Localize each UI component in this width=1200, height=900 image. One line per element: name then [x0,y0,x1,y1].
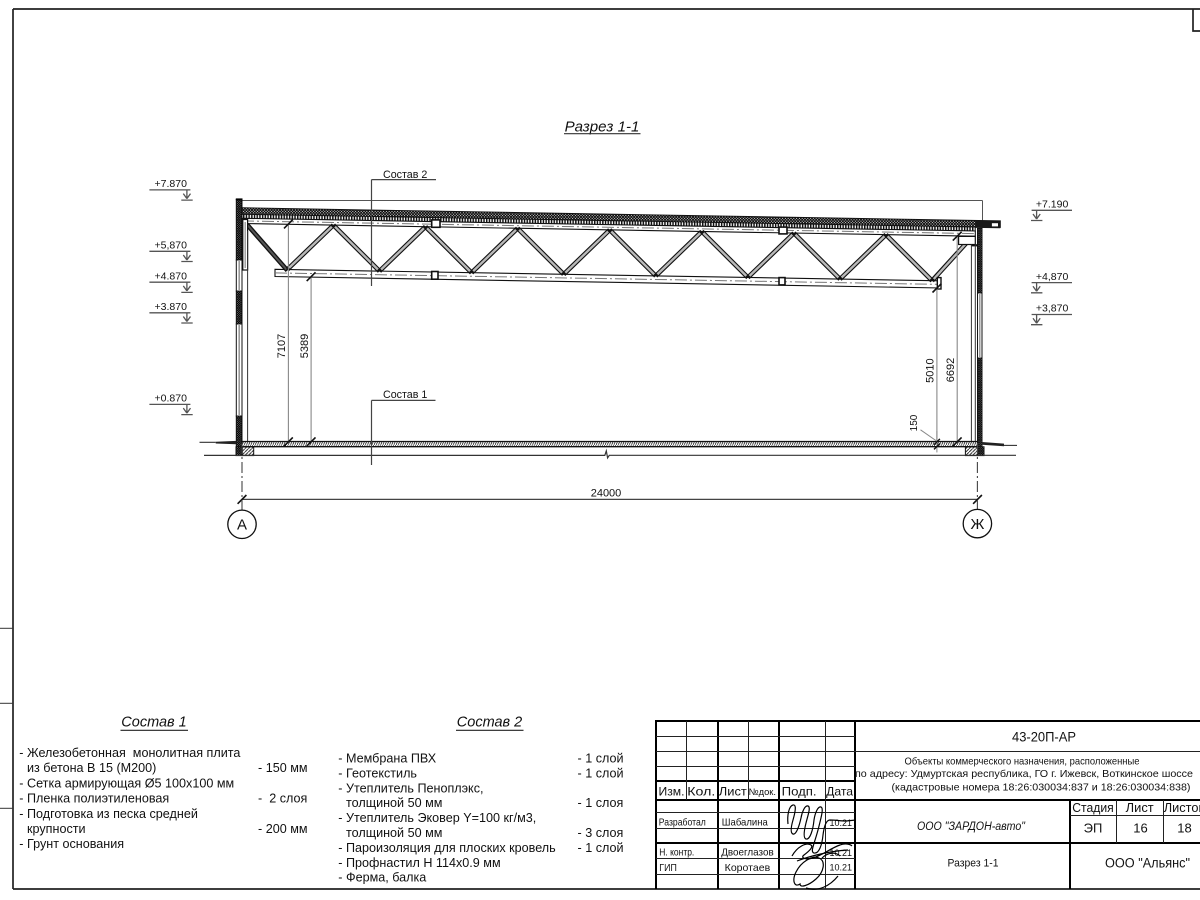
svg-text:10.21: 10.21 [830,862,853,873]
svg-text:Разрез 1-1: Разрез 1-1 [948,858,999,870]
svg-text:150: 150 [909,414,920,431]
svg-text:Н. контр.: Н. контр. [659,848,694,859]
svg-text:- Геотекстиль: - Геотекстиль [338,766,417,780]
svg-text:18: 18 [1177,821,1191,836]
svg-text:10.21: 10.21 [830,818,853,829]
svg-text:Состав 2: Состав 2 [457,715,522,731]
svg-text:+3.870: +3.870 [155,301,188,313]
svg-text:+7.870: +7.870 [155,178,188,190]
svg-text:ООО "Альянс": ООО "Альянс" [1105,856,1190,871]
svg-text:24000: 24000 [591,487,622,499]
svg-text:Разрез 1-1: Разрез 1-1 [565,118,640,135]
svg-text:- Подготовка из песка средней: - Подготовка из песка средней [19,807,198,821]
svg-text:Изм.: Изм. [659,785,685,799]
svg-text:Объекты коммерческого назначен: Объекты коммерческого назначения, распол… [905,756,1140,768]
svg-text:из бетона В 15 (М200): из бетона В 15 (М200) [27,761,156,775]
svg-text:- Железобетонная монолитная п: - Железобетонная монолитная плита [19,746,240,760]
svg-text:толщиной 50 мм: толщиной 50 мм [346,826,442,840]
svg-text:- Профнастил Н 114х0.9 мм: - Профнастил Н 114х0.9 мм [338,856,500,870]
svg-text:- 200 мм: - 200 мм [258,822,308,836]
svg-text:Лист: Лист [1126,801,1154,815]
svg-text:+4,870: +4,870 [1036,271,1069,283]
svg-text:- 1 слоя: - 1 слоя [578,796,624,810]
svg-text:ГИП: ГИП [659,863,677,874]
svg-text:16: 16 [1133,821,1147,836]
svg-text:Листов: Листов [1164,801,1200,815]
svg-text:Коротаев: Коротаев [725,862,771,874]
svg-text:- Утеплитель Эковер Y=100 кг/м: - Утеплитель Эковер Y=100 кг/м3, [338,811,536,825]
svg-text:Стадия: Стадия [1072,801,1114,815]
svg-text:- 150 мм: - 150 мм [258,761,308,775]
svg-text:по адресу: Удмуртская республи: по адресу: Удмуртская республика, ГО г. … [855,768,1193,780]
svg-text:+0.870: +0.870 [155,393,188,405]
svg-text:- 1 слой: - 1 слой [578,766,624,780]
svg-text:Кол.: Кол. [687,785,715,799]
svg-text:Подп.: Подп. [782,785,817,799]
svg-text:+3,870: +3,870 [1036,303,1069,315]
svg-text:- Утеплитель Пеноплэкс,: - Утеплитель Пеноплэкс, [338,781,483,795]
svg-text:Состав 1: Состав 1 [383,389,427,401]
svg-text:- 1 слой: - 1 слой [578,752,624,766]
svg-text:Двоеглазов: Двоеглазов [721,847,774,859]
svg-text:- Мембрана ПВХ: - Мембрана ПВХ [338,752,436,766]
svg-text:+7.190: +7.190 [1036,199,1069,211]
svg-text:Ж: Ж [970,516,984,533]
svg-text:- 2 слоя: - 2 слоя [258,792,307,806]
svg-text:Дата: Дата [826,785,853,799]
svg-text:- Грунт основания: - Грунт основания [19,837,124,851]
svg-text:№док.: №док. [749,787,776,798]
svg-text:43-20П-АР: 43-20П-АР [1012,730,1076,745]
svg-text:- Ферма, балка: - Ферма, балка [338,871,426,885]
svg-text:+4.870: +4.870 [155,270,188,282]
svg-text:Разработал: Разработал [659,816,706,828]
svg-text:- Пароизоляция для плоских кро: - Пароизоляция для плоских кровель [338,841,556,855]
svg-text:- Пленка полиэтиленовая: - Пленка полиэтиленовая [19,792,169,806]
svg-text:Лист: Лист [719,785,748,799]
svg-text:5010: 5010 [925,358,937,382]
svg-text:(кадастровые номера 18:26:0300: (кадастровые номера 18:26:030034:837 и 1… [892,782,1191,794]
svg-text:ООО "ЗАРДОН-авто": ООО "ЗАРДОН-авто" [917,821,1026,833]
svg-text:- 1 слой: - 1 слой [578,841,624,855]
svg-text:7107: 7107 [276,334,288,358]
svg-text:ЭП: ЭП [1084,821,1103,836]
svg-text:5389: 5389 [299,334,311,358]
svg-text:Шабалина: Шабалина [722,816,768,828]
svg-text:6692: 6692 [945,358,957,382]
svg-text:- Сетка армирующая Ø5 100х100: - Сетка армирующая Ø5 100х100 мм [19,776,234,790]
svg-text:толщиной 50 мм: толщиной 50 мм [346,796,442,810]
svg-text:Состав 1: Состав 1 [121,715,186,731]
svg-text:+5,870: +5,870 [155,240,188,252]
svg-text:А: А [237,517,247,534]
svg-text:- 3 слоя: - 3 слоя [578,826,624,840]
svg-text:крупности: крупности [27,822,86,836]
